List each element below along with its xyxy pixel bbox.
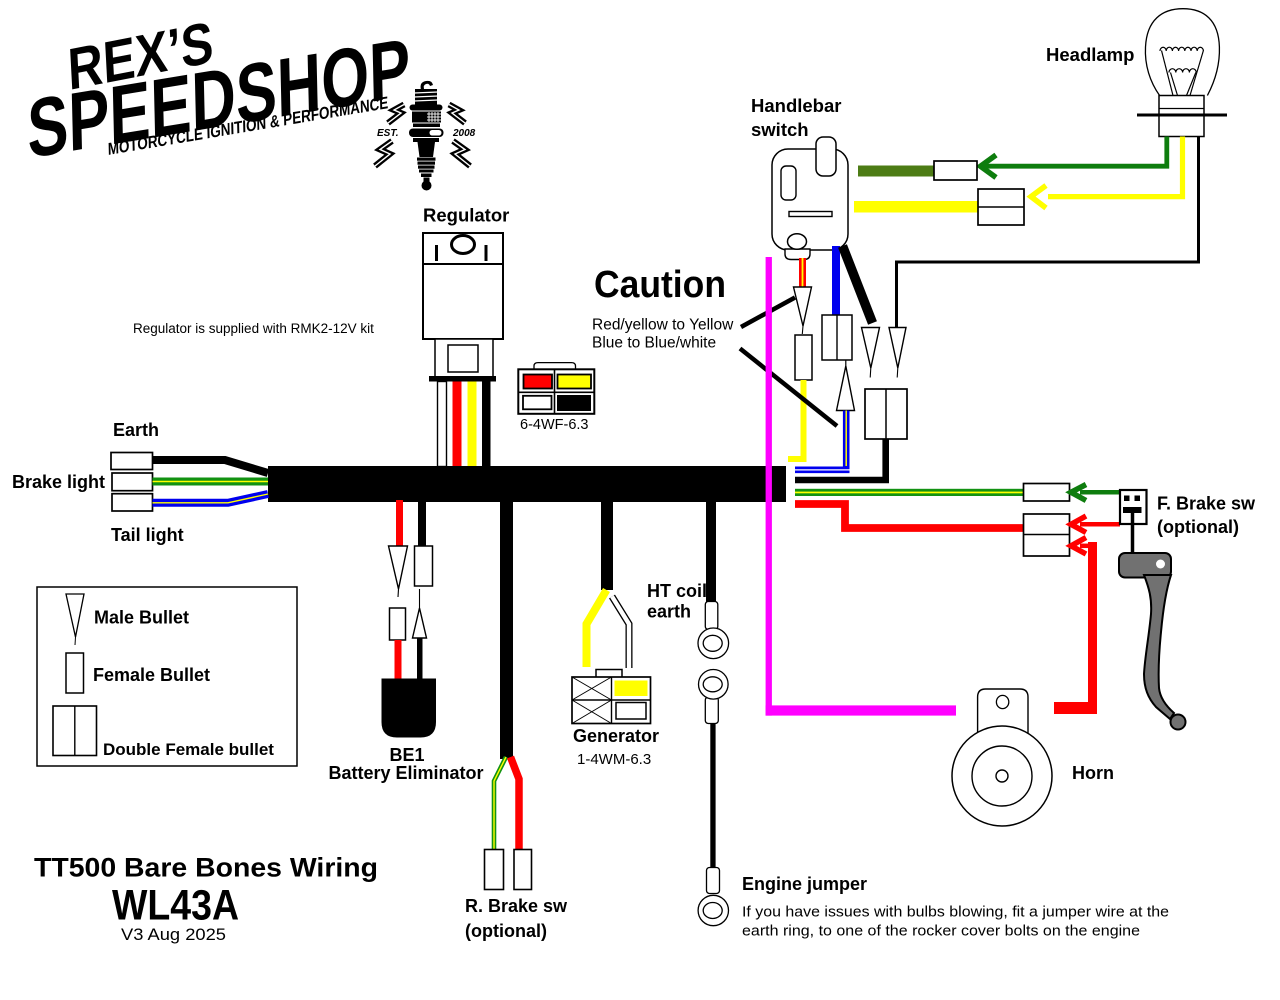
svg-text:Battery Eliminator: Battery Eliminator — [328, 763, 483, 783]
svg-text:Generator: Generator — [573, 726, 659, 746]
svg-text:2008: 2008 — [452, 128, 476, 139]
svg-text:Handlebar: Handlebar — [751, 95, 841, 116]
svg-text:Male Bullet: Male Bullet — [94, 608, 189, 628]
svg-text:6-4WF-6.3: 6-4WF-6.3 — [520, 417, 589, 433]
svg-text:Red/yellow to Yellow: Red/yellow to Yellow — [592, 317, 734, 334]
svg-text:BE1: BE1 — [389, 745, 424, 765]
svg-text:Caution: Caution — [594, 264, 726, 306]
svg-text:EST.: EST. — [377, 128, 398, 139]
svg-text:Horn: Horn — [1072, 763, 1114, 783]
svg-text:Female Bullet: Female Bullet — [93, 665, 210, 685]
svg-text:Blue to Blue/white: Blue to Blue/white — [592, 335, 716, 352]
svg-text:F. Brake sw: F. Brake sw — [1157, 494, 1256, 514]
svg-text:WL43A: WL43A — [112, 882, 239, 930]
svg-text:Regulator: Regulator — [423, 205, 509, 226]
svg-text:Double Female bullet: Double Female bullet — [103, 740, 274, 759]
svg-text:Regulator is supplied with RMK: Regulator is supplied with RMK2-12V kit — [133, 321, 374, 336]
svg-text:(optional): (optional) — [1157, 517, 1239, 537]
svg-text:Engine jumper: Engine jumper — [742, 874, 867, 894]
svg-text:earth ring, to one of the rock: earth ring, to one of the rocker cover b… — [742, 923, 1140, 940]
svg-text:Headlamp: Headlamp — [1046, 44, 1134, 65]
svg-text:TT500 Bare Bones Wiring: TT500 Bare Bones Wiring — [34, 853, 378, 883]
svg-text:Earth: Earth — [113, 420, 159, 440]
svg-text:R. Brake sw: R. Brake sw — [465, 896, 568, 916]
svg-text:Brake light: Brake light — [12, 472, 105, 492]
svg-text:V3 Aug 2025: V3 Aug 2025 — [121, 925, 226, 944]
svg-text:(optional): (optional) — [465, 921, 547, 941]
svg-text:switch: switch — [751, 119, 809, 140]
svg-text:1-4WM-6.3: 1-4WM-6.3 — [577, 751, 651, 768]
svg-text:HT coil: HT coil — [647, 581, 707, 601]
svg-text:Tail light: Tail light — [111, 525, 184, 545]
svg-text:earth: earth — [647, 602, 691, 622]
svg-text:If you have issues with bulbs: If you have issues with bulbs blowing, f… — [742, 904, 1169, 921]
